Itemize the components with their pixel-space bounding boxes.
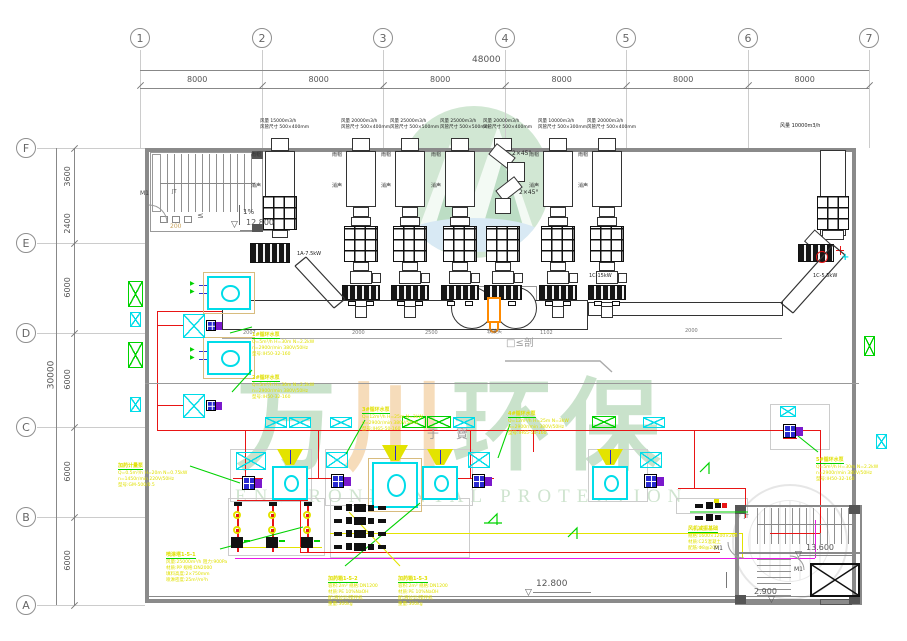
elevator-x [812,565,858,595]
stair2-label: JT [744,515,749,521]
annotation-title: 3#循环水泵 [362,406,390,414]
annotation-block: 加药计量泵Q=0.5m³/h H=20m N=0.75kWn=1450r/min… [118,452,208,482]
dim-label: 8000 [309,76,329,85]
green-arrow: ▶ [190,289,195,296]
manifold-valve-dot [236,529,239,532]
dim-label: 6000 [64,277,73,297]
manifold-valve-dot [306,529,309,532]
valve-assembly [334,545,342,549]
elev-triangle: ▽ [768,596,775,606]
valve-assembly [378,532,386,536]
fan-label-tower: 1C-15kW [589,274,612,280]
valve-assembly [368,544,374,550]
fan-label-right: 1C-5.5kW [813,274,837,280]
valve-assembly [695,504,703,508]
duct-dim: 2000 [352,331,365,337]
valve-assembly [715,503,721,508]
valve-assembly [706,502,713,509]
valve-assembly [378,506,386,510]
valve-assembly [346,530,352,537]
ground-symbols [484,463,709,539]
annotation-line: 型号:IH50-32-160 [252,352,342,358]
stair2-door1-label: M1 [714,546,723,553]
valve-assembly [354,504,366,512]
elev-triangle: ▽ [795,551,802,561]
duct-dim: 1102 [540,331,553,337]
section-mark: □≤剖 [506,338,534,349]
elevation-bottom: 12.800 [536,580,568,590]
cyan-plus: + [841,252,849,263]
valve-assembly [334,519,342,523]
green-arrow: ▶ [190,281,195,288]
stair2-door2-label: M1 [794,567,803,574]
annotation-line: 配筋:Φ8@200 [688,546,778,552]
valve-assembly [346,504,352,511]
dim-total-cols: 48000 [472,56,501,66]
manifold-tick [279,540,285,542]
annotation-line: 重量:300kg [398,602,488,608]
valve-assembly [354,530,366,538]
annotation-title: 加药计量泵 [118,462,143,470]
dim-label: 8000 [795,76,815,85]
green-arrow: ▶ [190,347,195,354]
valve-assembly [346,543,352,550]
tower-side-label: 消声 [251,184,261,190]
tower-flow-label: 风量 20000m3/h风管尺寸 500×400mm [483,119,532,131]
annotation-block: 风机减振基础规格:1600×1200×200材质:C25混凝土配筋:Φ8@200 [688,515,778,545]
annotation-block: 3#循环水泵Q=12m³/h H=25m N=3kWn=2900r/min 38… [362,396,452,426]
bend-label: 2×45° [512,151,531,158]
tower-side-label: 消声 [381,184,391,190]
dim-label: 8000 [673,76,693,85]
tower-side-label: 雨帽 [578,153,588,159]
dim-label: 6000 [64,550,73,570]
slope-label: 1% [243,209,254,217]
dim-label: 8000 [187,76,207,85]
annotation-block: 2#循环水泵Q=5m³/h H=30m N=2.2kWn=2900r/min 3… [252,364,342,394]
leader-line [232,370,252,392]
annotation-title: 2#循环水泵 [252,374,280,382]
annotation-title: 5#循环水泵 [816,456,844,464]
annotation-line: 型号:IH50-32-160 [252,395,342,401]
gray-glyph-2: 寶 [456,428,468,441]
stair1-door-label: M1 [140,191,149,198]
duct-dim: 2000 [685,329,698,335]
stair1-label: JT [172,190,177,196]
connector-label: 软接头 [487,330,502,336]
valve-assembly [346,517,352,524]
annotation-title: 加药箱1-5-2 [328,575,358,583]
fan-label-left: 1A-7.5kW [297,252,321,258]
dim-label: 3600 [64,166,73,186]
floor-plan-canvas: ENVIRONMENTAL PROTECTION [0,0,907,641]
valve-assembly [334,532,342,536]
section-mark-line [505,361,612,372]
dim-label: 8000 [430,76,450,85]
valve-dot-yellow [714,499,719,503]
valve-assembly [354,543,366,551]
stair1-leq: ≤ [197,212,204,221]
tower-flow-label: 风量 25000m3/h风管尺寸 500×500mm [440,119,489,131]
duct-dim: 2007 [243,331,256,337]
manifold-pump [266,537,278,548]
elevation-stair2-top: 13.600 [806,544,834,553]
valve-assembly [368,531,374,537]
manifold-valve-dot [236,514,239,517]
elevation-stair1: 12.800 [246,219,274,228]
annotation-block: 加药箱1-5-3容积:2m³ 规格:DN1200材质:PE 10%NaOH配:液… [398,565,488,595]
elev-triangle: ▽ [231,221,238,231]
dim-label: 2400 [64,213,73,233]
annotation-line: 型号:IH50-32-160 [816,477,906,483]
dim-label: 8000 [552,76,572,85]
valve-assembly [354,517,366,525]
annotation-title: 4#循环水泵 [508,410,536,418]
tower-side-label: 雨帽 [381,153,391,159]
annotation-block: 4#循环水泵Q=12m³/h H=25m N=3kWn=2900r/min 38… [508,400,598,430]
manifold-valve-dot [271,514,274,517]
tower-flow-label: 风量 20000m3/h风管尺寸 500×400mm [341,119,390,131]
annotation-line: 型号:GM-500/0.5 [118,483,208,489]
annotation-title: 喷淋塔1-5-1 [166,551,196,559]
valve-dot-red [722,503,727,508]
tower-side-label: 消声 [431,184,441,190]
dim-total-rows: 30000 [47,361,57,390]
tower-flow-label: 风量 10000m3/h风管尺寸 500×300mm [538,119,587,131]
annotation-line: 喷淋密度:25m³/m²h [166,578,256,584]
valve-assembly [334,506,342,510]
tower-side-label: 消声 [332,184,342,190]
manifold-pump [301,537,313,548]
annotation-title: 加药箱1-5-3 [398,575,428,583]
tower-flow-label: 风量 20000m3/h风管尺寸 500×400mm [587,119,636,131]
annotation-block: 5#循环水泵Q=5m³/h H=30m N=2.2kWn=2900r/min 3… [816,446,906,476]
dim-label: 6000 [64,369,73,389]
blower-funnel-line [610,450,611,464]
tower-side-label: 雨帽 [251,153,261,159]
right-duct-flow: 风量 10000m3/h [780,124,820,130]
valve-assembly [368,518,374,524]
diagonal-ducts [295,245,845,313]
duct-dim: 2500 [425,331,438,337]
annotation-block: 1#循环水泵Q=5m³/h H=30m N=2.2kWn=2900r/min 3… [252,321,342,351]
tower-side-label: 雨帽 [431,153,441,159]
valve-assembly [368,505,374,511]
blower-funnel-line [290,450,291,464]
blower-funnel-line [395,446,396,460]
tower-side-label: 雨帽 [332,153,342,159]
annotation-title: 风机减振基础 [688,525,718,533]
tower-side-label: 消声 [578,184,588,190]
annotation-block: 喷淋塔1-5-1风量:25000m³/h 阻力:900Pa材质:PP 规格:DN… [166,541,256,571]
green-arrow: ▶ [190,355,195,362]
gray-glyph-1: 于 [427,428,439,441]
bend-label: 2×45° [519,190,538,197]
tower-flow-label: 风量 25000m3/h风管尺寸 500×500mm [390,119,439,131]
blower-funnel-line [440,450,441,464]
leader-line [798,436,818,452]
valve-assembly [378,545,386,549]
manifold-valve-dot [271,529,274,532]
annotation-title: 1#循环水泵 [252,331,280,339]
manifold-tick [314,540,320,542]
manifold-valve-dot [306,514,309,517]
stair1-num: 200 [170,224,181,231]
annotation-line: 型号:IH65-50-160 [508,431,598,437]
tower-flow-label: 风量 15000m3/h风管尺寸 500×400mm [260,119,309,131]
valve-assembly [378,519,386,523]
dim-label: 6000 [64,461,73,481]
elev-triangle: ▽ [525,589,532,599]
